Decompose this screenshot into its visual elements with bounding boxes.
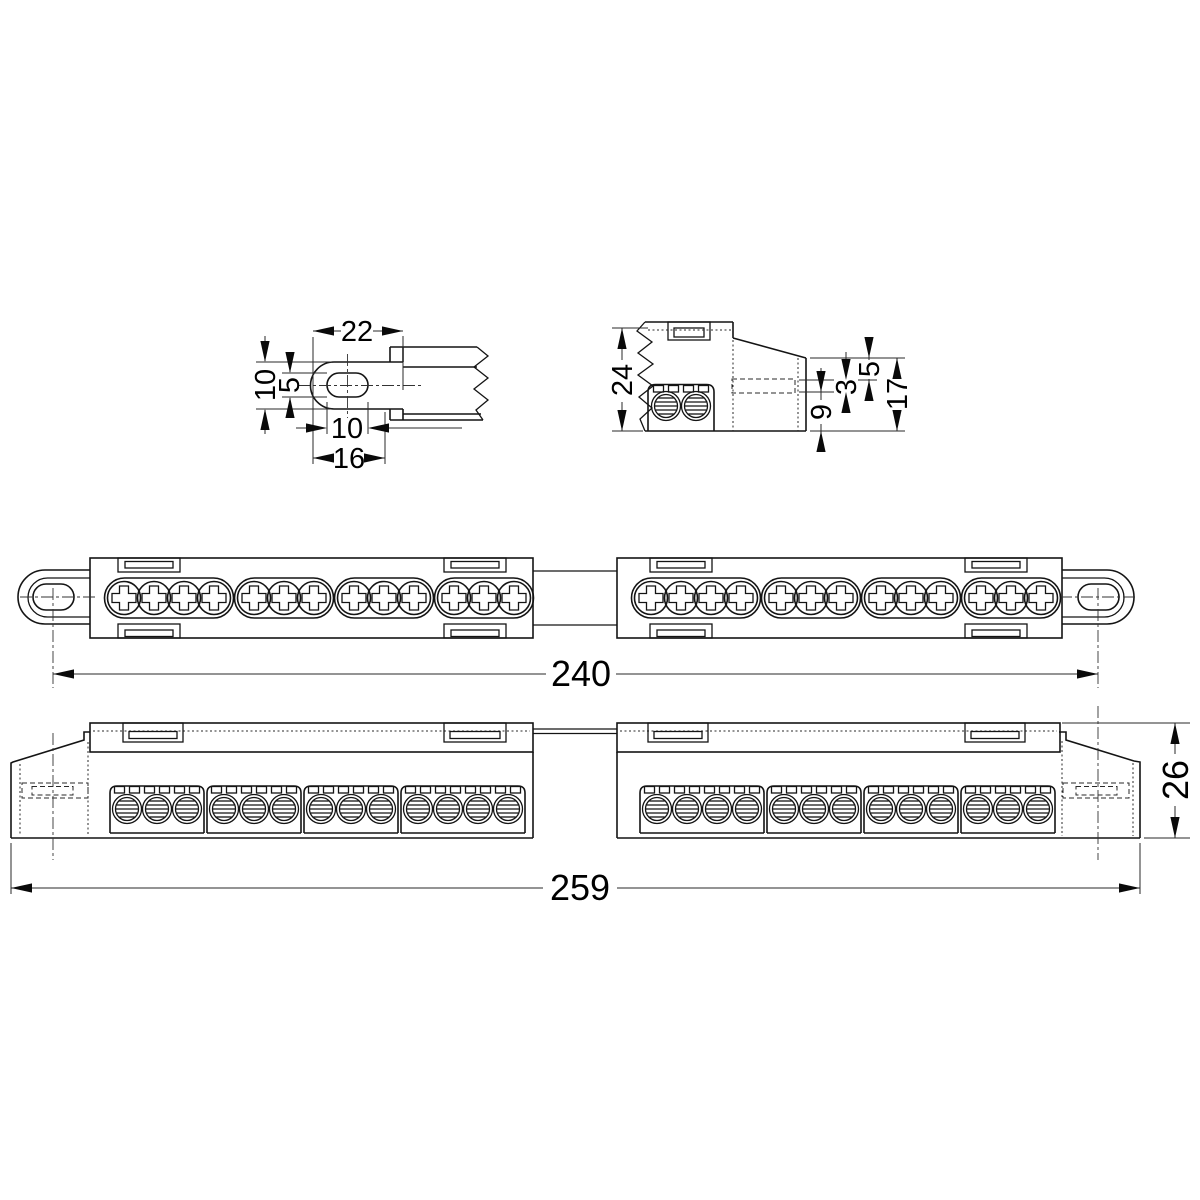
terminal-modules [110, 786, 1055, 833]
center-busbar [533, 571, 617, 625]
top-view: 240 [18, 558, 1136, 694]
dim-overall-height: 24 [607, 364, 639, 396]
dim-step-bottom: 9 [806, 404, 838, 420]
right-hidden-slot-inner [1076, 787, 1117, 796]
lug-detail-view: 22 10 5 10 16 [250, 316, 488, 475]
terminal-holes [652, 386, 711, 421]
busbar-body [390, 347, 483, 420]
dim-step-top: 5 [854, 361, 886, 377]
dim-lug-length: 16 [333, 443, 365, 475]
dim-step-mid: 3 [831, 379, 863, 395]
left-housing [90, 723, 533, 752]
left-hidden-slot-inner [32, 787, 73, 796]
dim-slot-centers: 240 [551, 653, 611, 694]
hidden-lines [648, 330, 798, 431]
front-view: 259 26 [11, 706, 1196, 908]
center-busbar-edge [533, 729, 617, 734]
screw-terminals [105, 578, 1061, 618]
dim-overall-height: 26 [1155, 760, 1196, 800]
dim-slot-width: 5 [274, 377, 306, 393]
hidden-slot [732, 379, 795, 393]
right-hidden-slot [1063, 783, 1129, 798]
dim-slot-length: 10 [331, 413, 363, 445]
dim-end-height: 17 [882, 378, 914, 410]
technical-drawing-canvas: 22 10 5 10 16 24 5 3 9 17 [0, 0, 1200, 1200]
left-hidden-slot [22, 783, 88, 798]
clip-tabs [118, 558, 1027, 638]
right-housing [617, 723, 1060, 752]
break-line [474, 347, 488, 420]
dim-lug-to-body: 22 [341, 316, 373, 348]
drawing-page: 22 10 5 10 16 24 5 3 9 17 [0, 0, 1200, 1200]
din-clip-tab-inner [674, 328, 704, 337]
clip-tabs [123, 723, 1025, 742]
dim-overall-length: 259 [550, 867, 610, 908]
break-line [637, 322, 653, 431]
